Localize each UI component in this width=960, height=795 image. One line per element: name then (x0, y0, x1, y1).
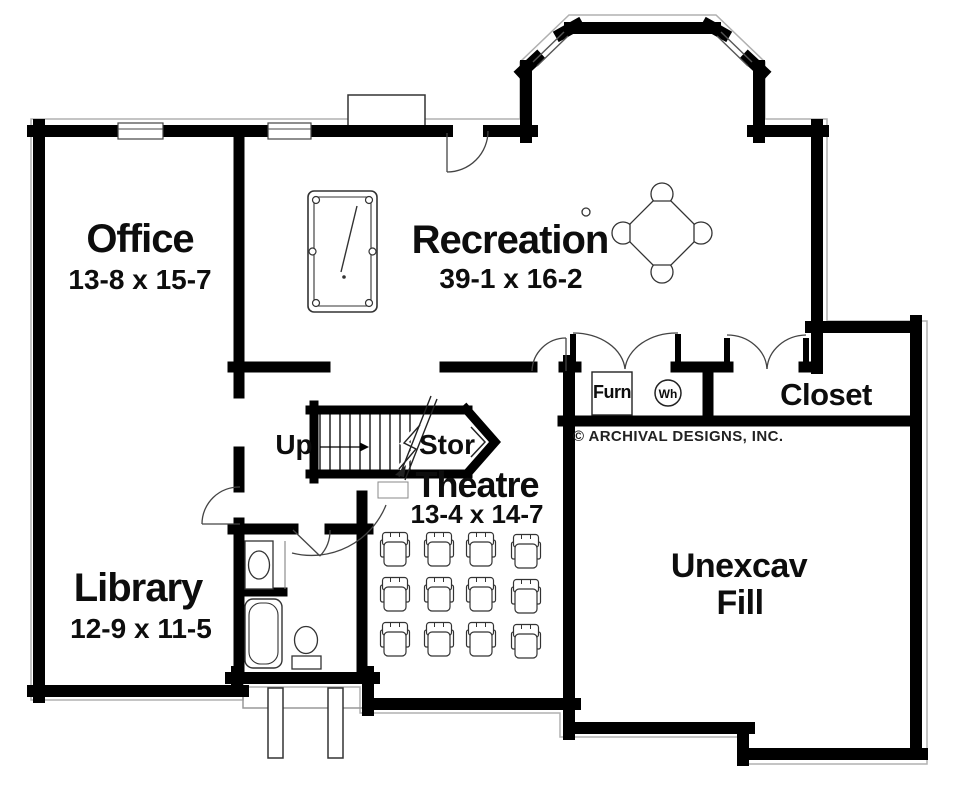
light-fixture (582, 208, 590, 216)
recreation-dimensions: 39-1 x 16-2 (439, 265, 582, 293)
cabinet (378, 482, 408, 498)
up-arrow (320, 443, 369, 452)
sink (249, 551, 270, 579)
furnace-label: Furn (593, 383, 631, 401)
storage-label: Stor (419, 431, 475, 459)
dining-table (612, 183, 712, 283)
bathroom-fixtures (245, 541, 321, 669)
copyright-text: © ARCHIVAL DESIGNS, INC. (573, 429, 783, 444)
cue-ball (342, 275, 346, 279)
toilet-bowl (295, 627, 318, 654)
theatre-dimensions: 13-4 x 14-7 (411, 501, 544, 527)
floor-plan: Office 13-8 x 15-7 Recreation 39-1 x 16-… (0, 0, 960, 795)
recreation-label: Recreation (412, 220, 609, 260)
pool-table (308, 191, 377, 312)
office-label: Office (86, 219, 193, 259)
unexcavated-label-1: Unexcav (671, 549, 807, 583)
stair-treads (320, 414, 410, 470)
library-dimensions: 12-9 x 11-5 (70, 615, 212, 643)
office-dimensions: 13-8 x 15-7 (68, 266, 211, 294)
chimney (348, 95, 425, 128)
closet-label: Closet (780, 379, 872, 410)
toilet-tank (292, 656, 321, 669)
water-heater-label: Wh (659, 388, 678, 400)
theatre-label: Theatre (415, 467, 538, 503)
theatre-seats (381, 533, 541, 659)
porch-pillars (268, 688, 343, 758)
stairs-up-label: Up (275, 431, 312, 459)
unexcavated-label-2: Fill (716, 586, 763, 620)
library-label: Library (74, 568, 203, 608)
